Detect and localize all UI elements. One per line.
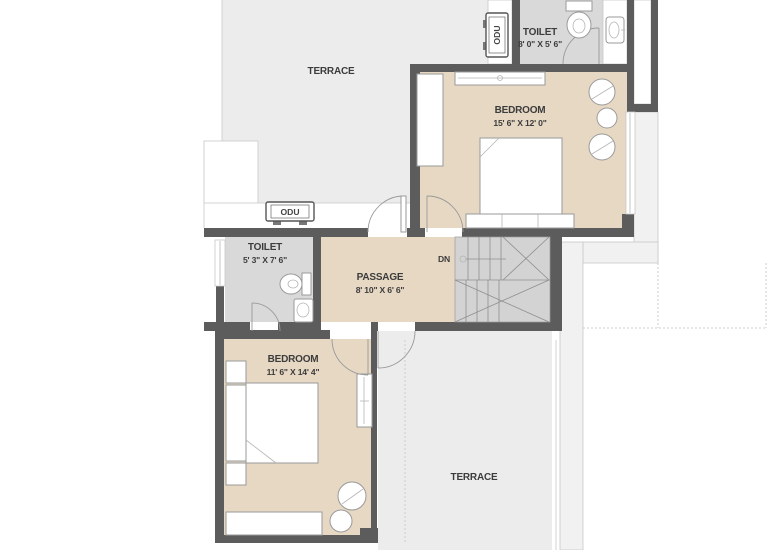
wall-segment xyxy=(313,237,321,331)
right-shaft xyxy=(634,0,651,104)
wall-segment xyxy=(204,322,250,331)
nightstand-icon xyxy=(226,361,246,383)
window-bedroom-bottom xyxy=(357,374,372,427)
wall-segment xyxy=(216,286,224,322)
wall-segment xyxy=(651,0,658,112)
terrace-bottom-label: TERRACE xyxy=(451,472,498,483)
terrace-bottom-fill xyxy=(378,331,552,550)
staircase xyxy=(455,237,550,322)
bedroom-bottom-dimensions: 11' 6" X 14' 4" xyxy=(267,367,320,377)
door-leaf-terrace-top xyxy=(401,196,406,232)
wall-segment xyxy=(224,330,330,339)
wall-segment xyxy=(410,64,634,72)
nightstand-icon xyxy=(226,463,246,485)
floor-plan-canvas: ODU ODU TERRACE xyxy=(0,0,768,550)
wall-segment xyxy=(550,228,562,331)
bed-mattress-icon xyxy=(480,138,562,216)
wall-segment xyxy=(215,330,224,543)
bed-headboard-icon xyxy=(226,385,246,461)
wall-segment xyxy=(371,322,378,331)
passage-dimensions: 8' 10" X 6' 6" xyxy=(356,285,405,295)
console-icon xyxy=(455,72,545,85)
bed-mattress-icon xyxy=(246,383,318,463)
window-frame xyxy=(357,374,372,427)
terrace-top-fill-right xyxy=(412,0,488,64)
window-bedroom-top xyxy=(626,112,635,214)
toilet-top-dimensions: 8' 0" X 5' 6" xyxy=(518,39,562,49)
ledge-strip-connector xyxy=(583,242,658,263)
stairs-down-label: DN xyxy=(438,254,450,264)
terrace-step-notch xyxy=(204,141,258,203)
wall-segment xyxy=(627,0,634,112)
wc-bowl-icon xyxy=(280,274,302,294)
wall-segment xyxy=(215,535,378,543)
wall-segment xyxy=(420,228,425,237)
toilet-middle-label: TOILET xyxy=(248,242,282,253)
wardrobe-icon xyxy=(417,74,443,166)
chair-icon xyxy=(589,79,615,105)
wall-segment xyxy=(278,322,321,331)
bedroom-bottom-label: BEDROOM xyxy=(268,354,319,365)
toilet-middle-dimensions: 5' 3" X 7' 6" xyxy=(243,255,287,265)
stool-icon xyxy=(330,510,352,532)
bedroom-top-dimensions: 15' 6" X 12' 0" xyxy=(493,118,546,128)
wall-segment xyxy=(415,322,550,331)
wardrobe-icon xyxy=(226,512,322,535)
odu-middle-label: ODU xyxy=(280,207,299,217)
bedroom-top-label: BEDROOM xyxy=(495,105,546,116)
wc-tank-icon xyxy=(566,1,592,11)
wall-segment xyxy=(371,331,377,535)
odu-unit-top: ODU xyxy=(483,13,508,57)
chair-icon xyxy=(589,134,615,160)
floor-plan: ODU ODU TERRACE xyxy=(0,0,768,550)
wc-bowl-icon xyxy=(567,12,591,38)
terrace-top-label: TERRACE xyxy=(308,66,355,77)
wall-segment xyxy=(627,104,658,112)
ledge-strip-upper xyxy=(634,112,658,262)
ledge-strip-lower xyxy=(560,242,583,550)
stool-icon xyxy=(597,108,617,128)
chair-icon xyxy=(338,482,366,510)
odu-top-label: ODU xyxy=(492,25,502,44)
wc-tank-icon xyxy=(302,273,311,295)
toilet-top-label: TOILET xyxy=(523,27,557,38)
passage-label: PASSAGE xyxy=(357,272,404,283)
wall-segment xyxy=(512,0,520,64)
wall-segment xyxy=(462,228,627,237)
wall-segment xyxy=(204,228,368,237)
bed-footboard-icon xyxy=(466,214,574,228)
odu-unit-middle: ODU xyxy=(266,202,314,225)
